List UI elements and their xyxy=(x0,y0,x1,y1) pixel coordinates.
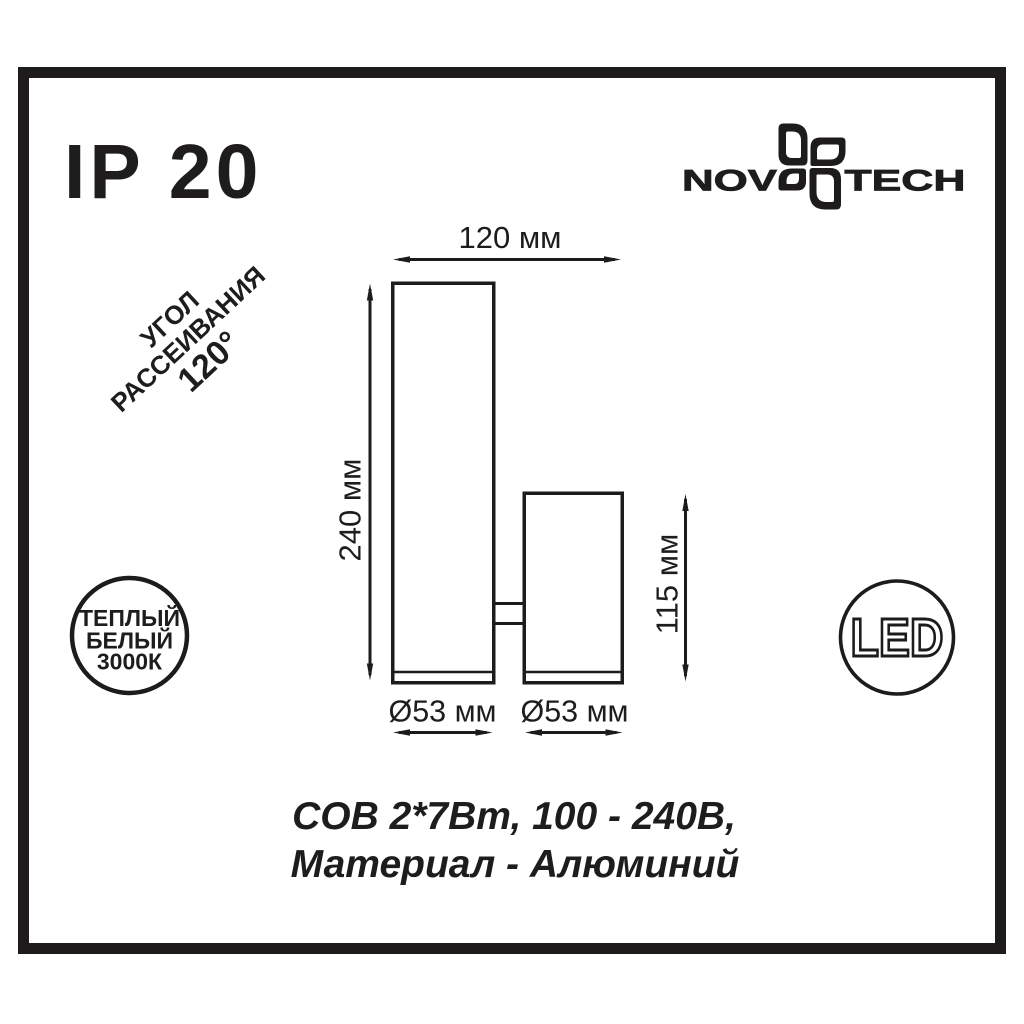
svg-text:LED: LED xyxy=(851,608,944,668)
svg-text:COB 2*7Вт, 100 - 240В,: COB 2*7Вт, 100 - 240В, xyxy=(292,795,736,838)
svg-text:IP 20: IP 20 xyxy=(64,129,262,215)
svg-text:TECH: TECH xyxy=(845,165,966,198)
svg-text:240 мм: 240 мм xyxy=(333,459,368,562)
svg-text:NOV: NOV xyxy=(682,165,777,198)
svg-text:Ø53 мм: Ø53 мм xyxy=(520,695,628,729)
svg-text:Материал - Алюминий: Материал - Алюминий xyxy=(291,843,740,886)
svg-text:120 мм: 120 мм xyxy=(459,220,562,255)
svg-text:3000К: 3000К xyxy=(97,649,163,675)
svg-text:115 мм: 115 мм xyxy=(650,534,685,635)
svg-text:Ø53 мм: Ø53 мм xyxy=(388,695,496,729)
